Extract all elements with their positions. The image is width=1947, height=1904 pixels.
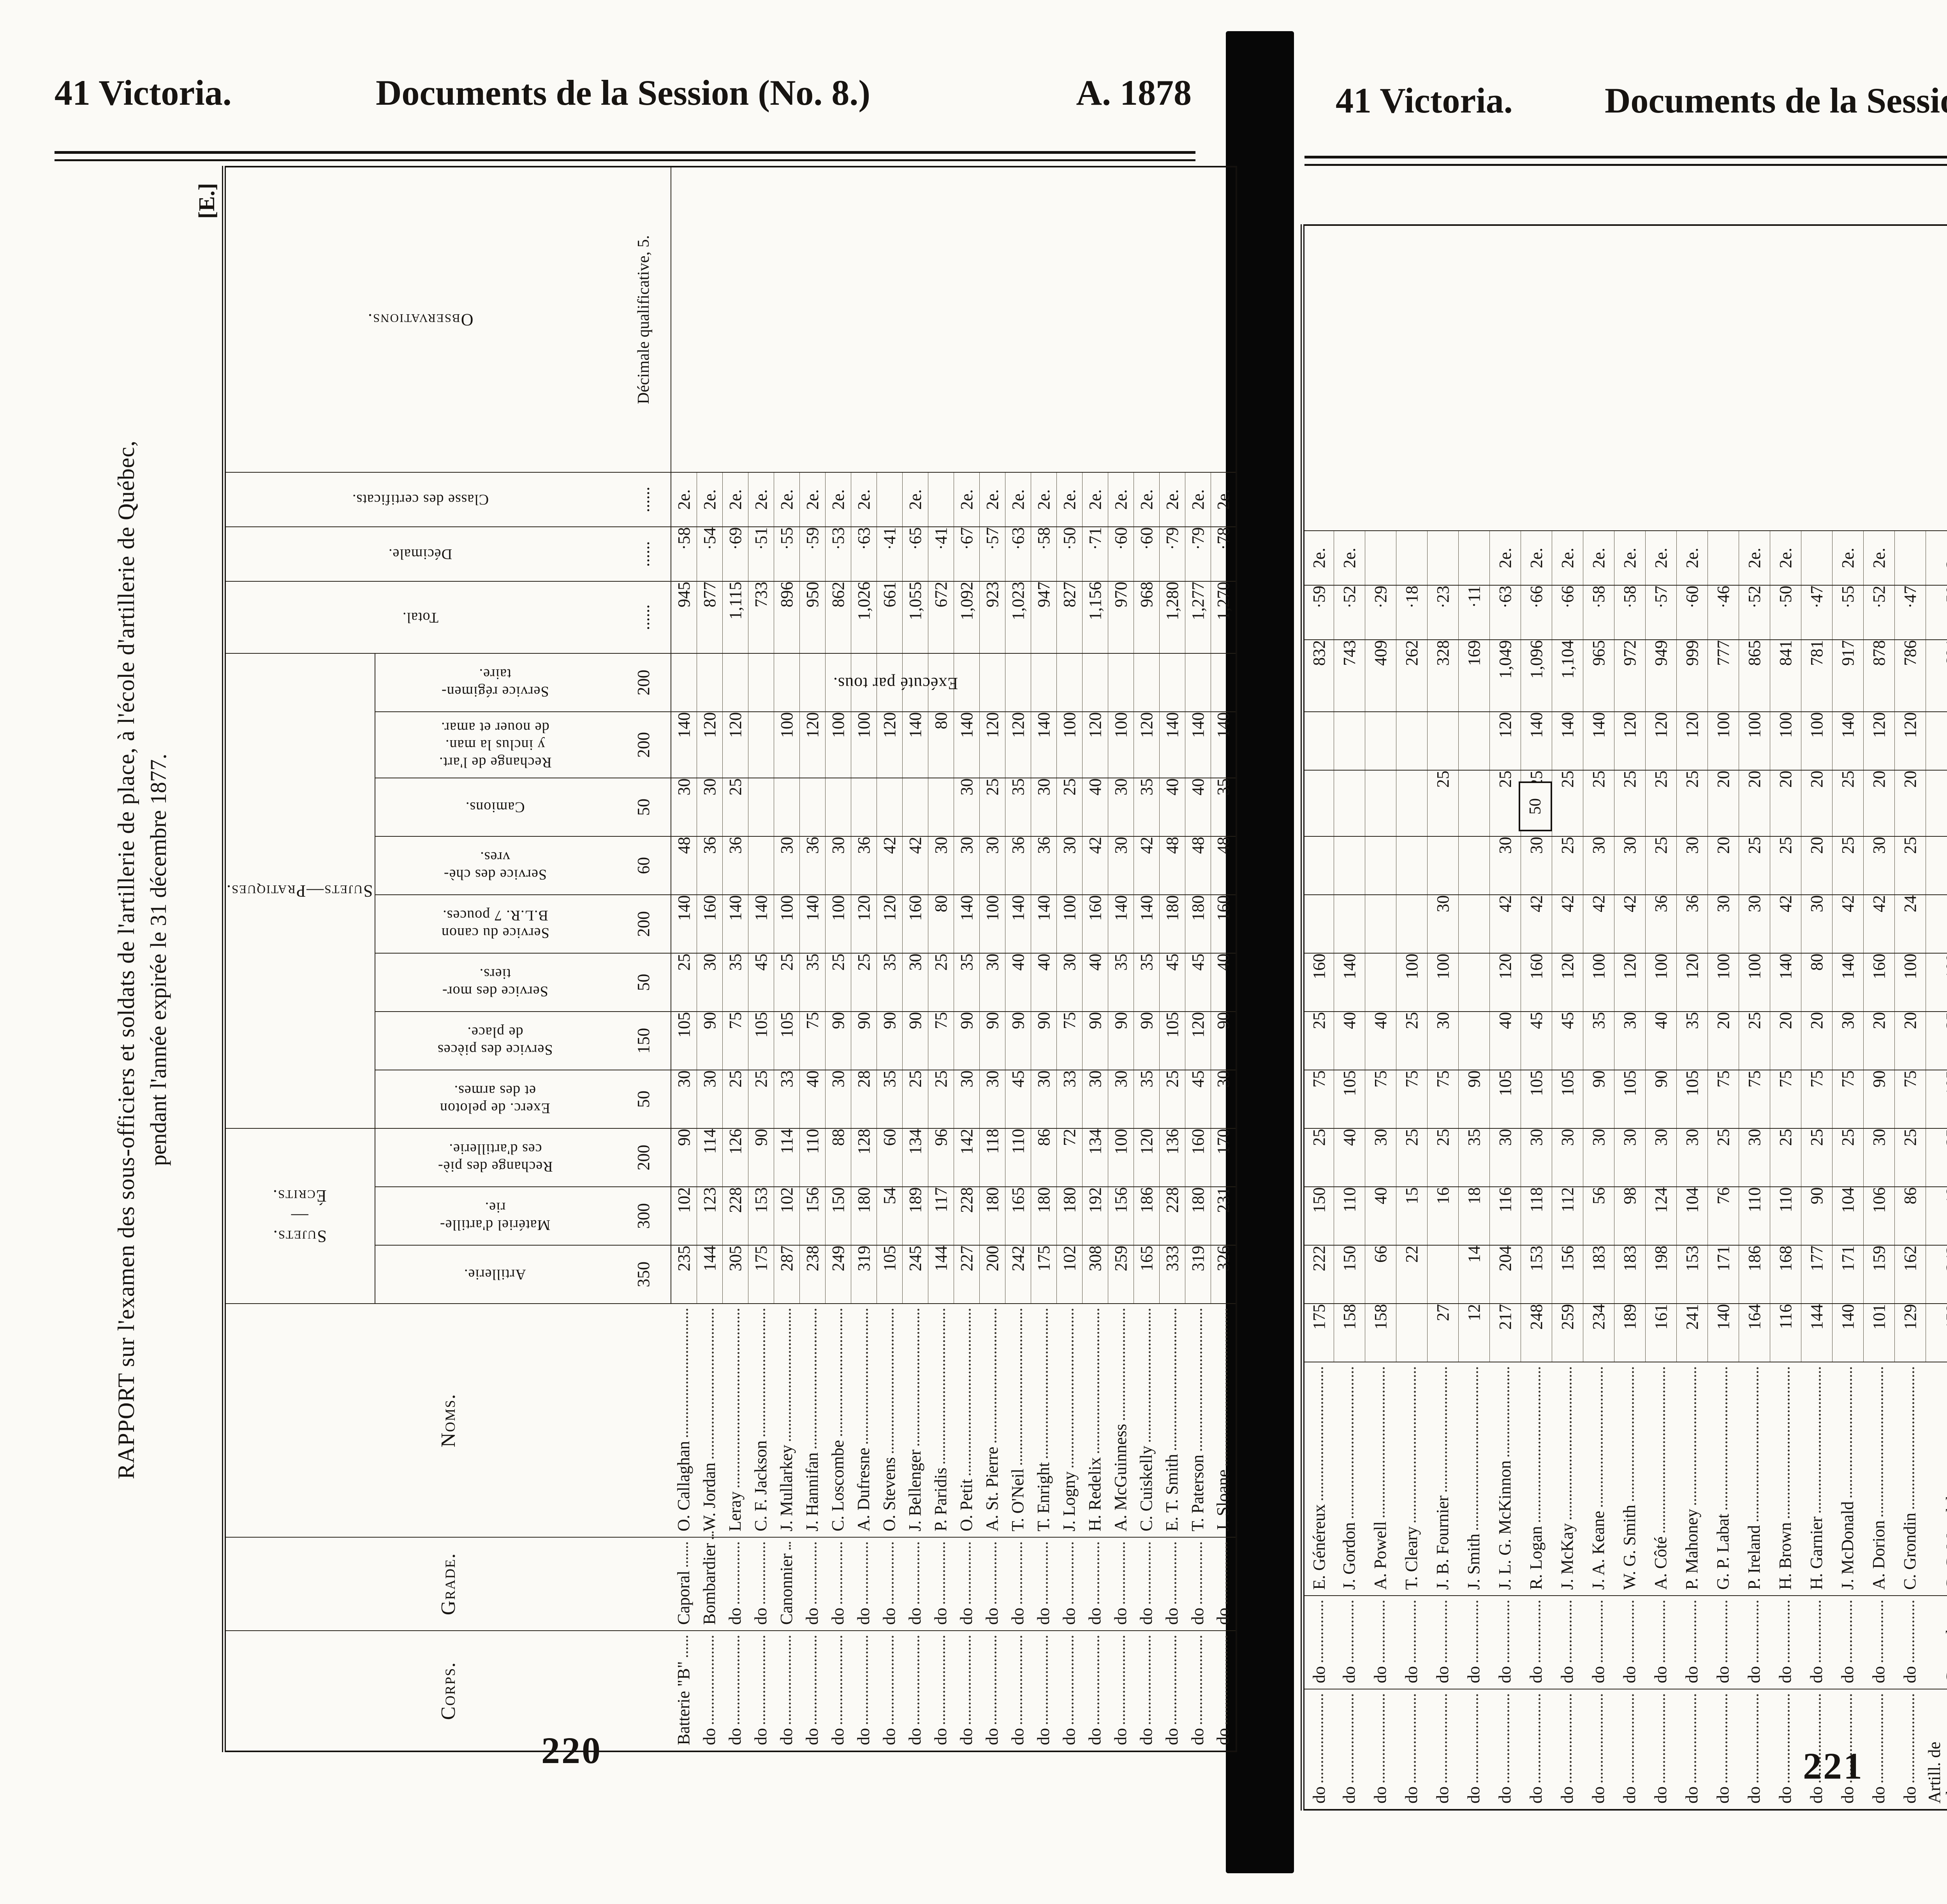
score-blr: 100 xyxy=(825,895,851,953)
score-total: 169 xyxy=(1458,640,1489,712)
score-total: 1,280 xyxy=(1159,581,1185,653)
score-materiel: 243 xyxy=(1926,1245,1947,1304)
grade-cell: do xyxy=(1108,1537,1134,1631)
score-artillerie: 140 xyxy=(1832,1304,1863,1362)
score-camions: 30 xyxy=(1521,836,1552,895)
score-total: 684 xyxy=(1926,640,1947,712)
score-chevres: 42 xyxy=(1614,895,1645,953)
score-place: 105 xyxy=(748,1012,774,1070)
soldier-row: do do J. Gordon 158 150 110 40 105 40 14… xyxy=(1334,225,1365,1810)
score-place: 90 xyxy=(1031,1012,1056,1070)
max-rechange-art: 200 xyxy=(616,712,671,778)
soldier-row: do do T. Paterson 319 180 160 45 120 45 … xyxy=(1185,167,1211,1751)
grade-cell: do xyxy=(1427,1596,1458,1689)
score-blr: 100 xyxy=(1926,953,1947,1012)
observations-cell xyxy=(1159,167,1185,472)
score-service-reg xyxy=(1185,653,1211,712)
score-artillerie: 165 xyxy=(1134,1245,1159,1304)
section-mark: [E.] xyxy=(194,183,220,219)
score-chevres xyxy=(1926,895,1947,953)
observations-cell xyxy=(1832,225,1863,531)
soldier-row: do do J. Logny 102 180 72 33 75 30 100 3… xyxy=(1056,167,1082,1751)
score-artillerie: 242 xyxy=(1005,1245,1031,1304)
score-mortiers: 40 xyxy=(1005,953,1031,1012)
score-chevres: 48 xyxy=(671,836,697,895)
score-peloton: 30 xyxy=(1489,1128,1521,1187)
observations-cell xyxy=(1583,225,1614,531)
max-blr: 200 xyxy=(616,895,671,953)
score-chevres: 36 xyxy=(1645,895,1676,953)
score-rechange-art: 20 xyxy=(1770,770,1801,836)
corps-cell: do xyxy=(748,1631,774,1751)
score-total: 877 xyxy=(697,581,722,653)
score-mortiers: 40 xyxy=(1645,1012,1676,1070)
score-peloton: 30 xyxy=(954,1070,979,1128)
score-peloton: 33 xyxy=(774,1070,799,1128)
score-mortiers: 20 xyxy=(1801,1012,1832,1070)
certificate-class: 2e. xyxy=(1005,472,1031,527)
observations-cell xyxy=(1134,167,1159,472)
name-cell: J. Logny xyxy=(1056,1304,1082,1537)
name-cell: O. Stevens xyxy=(877,1304,902,1537)
table-body-left: Batterie "B" Caporal O. Callaghan 235 10… xyxy=(671,167,1236,1751)
observations-cell xyxy=(1334,225,1365,531)
score-rechange-art: 120 xyxy=(1005,712,1031,778)
certificate-class xyxy=(1427,531,1458,585)
score-camions xyxy=(1303,836,1334,895)
score-decimale: ·54 xyxy=(697,527,722,581)
score-artillerie: 319 xyxy=(1185,1245,1211,1304)
score-rechange-art: 140 xyxy=(902,712,928,778)
score-materiel: 150 xyxy=(825,1187,851,1245)
name-cell: T. Cleary xyxy=(1396,1362,1427,1596)
score-rechange-art: 100 xyxy=(1056,712,1082,778)
score-camions xyxy=(799,778,825,836)
score-blr: 180 xyxy=(1159,895,1185,953)
certificate-class: 2e. xyxy=(1583,531,1614,585)
score-blr: 160 xyxy=(1303,953,1334,1012)
score-blr: 140 xyxy=(671,895,697,953)
score-materiel: 222 xyxy=(1303,1245,1334,1304)
score-chevres xyxy=(1458,895,1489,953)
score-mortiers: 20 xyxy=(1863,1012,1894,1070)
score-rechange-pieces: 90 xyxy=(748,1128,774,1187)
name-cell: A. Powell xyxy=(1365,1362,1396,1596)
header-group-ecrits: Sujets. — Écrits. xyxy=(224,1128,375,1304)
score-place: 75 xyxy=(1365,1070,1396,1128)
score-decimale: ·71 xyxy=(1082,527,1108,581)
name-cell: J. L. G. McKinnon xyxy=(1489,1362,1521,1596)
score-decimale: ·52 xyxy=(1863,585,1894,640)
score-blr: 160 xyxy=(902,895,928,953)
score-place: 105 xyxy=(671,1012,697,1070)
score-service-reg xyxy=(1031,653,1056,712)
certificate-class: 2e. xyxy=(1863,531,1894,585)
name-cell: T. Enright xyxy=(1031,1304,1056,1537)
corps-cell: do xyxy=(1334,1689,1365,1810)
certificate-class: 2e. xyxy=(1134,472,1159,527)
score-peloton: 30 xyxy=(1211,1070,1236,1128)
grade-cell: do xyxy=(1863,1596,1894,1689)
score-decimale: ·23 xyxy=(1427,585,1458,640)
soldier-row: do do O. Petit 227 228 142 30 90 35 140 … xyxy=(954,167,979,1751)
observations-cell xyxy=(1458,225,1489,531)
score-place: 90 xyxy=(851,1012,877,1070)
score-place: 105 xyxy=(1926,1070,1947,1128)
grade-cell: do xyxy=(799,1537,825,1631)
score-rechange-art: 100 xyxy=(825,712,851,778)
score-total: 1,026 xyxy=(851,581,877,653)
score-camions xyxy=(1458,836,1489,895)
observations-cell xyxy=(1082,167,1108,472)
score-rechange-art: 25 xyxy=(1645,770,1676,836)
score-mortiers: 45 xyxy=(1521,1012,1552,1070)
certificate-class: 2e. xyxy=(851,472,877,527)
score-rechange-pieces: 15 xyxy=(1396,1187,1427,1245)
score-materiel: 117 xyxy=(928,1187,954,1245)
score-rechange-art: 25 xyxy=(1427,770,1458,836)
score-peloton: 35 xyxy=(1458,1128,1489,1187)
score-place: 75 xyxy=(1894,1070,1926,1128)
score-chevres: 48 xyxy=(1159,836,1185,895)
score-rechange-pieces: 118 xyxy=(979,1128,1005,1187)
score-place: 75 xyxy=(1832,1070,1863,1128)
score-place: 75 xyxy=(1708,1070,1739,1128)
score-total: 733 xyxy=(748,581,774,653)
name-cell: T. Paterson xyxy=(1185,1304,1211,1537)
score-blr: 100 xyxy=(1583,953,1614,1012)
score-total: 1,049 xyxy=(1489,640,1521,712)
header-observations: Observations. xyxy=(224,167,616,472)
score-artillerie: 129 xyxy=(1894,1304,1926,1362)
page-number-right: 221 xyxy=(1803,1744,1864,1788)
grade-cell: do xyxy=(722,1537,748,1631)
score-peloton: 25 xyxy=(1894,1128,1926,1187)
score-chevres: 30 xyxy=(825,836,851,895)
score-place: 75 xyxy=(1427,1070,1458,1128)
score-mortiers: 40 xyxy=(1031,953,1056,1012)
score-rechange-art: 140 xyxy=(1185,712,1211,778)
name-cell: J. McKay xyxy=(1552,1362,1583,1596)
max-place: 150 xyxy=(616,1012,671,1070)
score-decimale: ·60 xyxy=(1108,527,1134,581)
score-rechange-art: 140 xyxy=(1211,712,1236,778)
score-chevres: 42 xyxy=(1863,895,1894,953)
header-corps: Corps. xyxy=(224,1631,671,1751)
score-decimale: ·53 xyxy=(825,527,851,581)
score-artillerie: 161 xyxy=(1645,1304,1676,1362)
score-rechange-art: 120 xyxy=(1082,712,1108,778)
name-cell: A. Côté xyxy=(1645,1362,1676,1596)
name-cell: J. B. Fournier xyxy=(1427,1362,1458,1596)
score-place: 90 xyxy=(1134,1012,1159,1070)
soldier-row: do do A. Côté 161 198 124 30 90 40 100 3… xyxy=(1645,225,1676,1810)
max-artillerie: 350 xyxy=(616,1245,671,1304)
score-rechange-pieces: 112 xyxy=(1552,1187,1583,1245)
score-artillerie: 241 xyxy=(1676,1304,1708,1362)
grade-cell: do xyxy=(902,1537,928,1631)
corps-cell: do xyxy=(1894,1689,1926,1810)
score-rechange-pieces: 120 xyxy=(1134,1128,1159,1187)
observations-cell xyxy=(1211,167,1236,472)
name-cell: P. Mahoney xyxy=(1676,1362,1708,1596)
certificate-class: 2e. xyxy=(902,472,928,527)
name-cell: J. Hannifan xyxy=(799,1304,825,1537)
score-rechange-art: 25 xyxy=(1552,770,1583,836)
name-cell: J. Bellenger xyxy=(902,1304,928,1537)
score-rechange-pieces: 170 xyxy=(1211,1128,1236,1187)
score-blr: 100 xyxy=(1427,953,1458,1012)
certificate-class: 2e. xyxy=(671,472,697,527)
name-cell: E. Généreux xyxy=(1303,1362,1334,1596)
score-chevres: 36 xyxy=(1031,836,1056,895)
score-mortiers: 30 xyxy=(979,953,1005,1012)
score-rechange-pieces: 118 xyxy=(1521,1187,1552,1245)
score-decimale: ·50 xyxy=(1770,585,1801,640)
score-decimale: ·63 xyxy=(1489,585,1521,640)
score-rechange-art: 80 xyxy=(928,712,954,778)
soldier-row: do Canonnier J. Mullarkey 287 102 114 33… xyxy=(774,167,799,1751)
certificate-class: 2e. xyxy=(1645,531,1676,585)
certificate-class: 2e. xyxy=(1676,531,1708,585)
soldier-row: do do J. A. Keane 234 183 56 30 90 35 10… xyxy=(1583,225,1614,1810)
score-artillerie: 227 xyxy=(954,1245,979,1304)
score-blr: 100 xyxy=(1894,953,1926,1012)
score-mortiers: 35 xyxy=(1676,1012,1708,1070)
soldier-row: do do T. Enright 175 180 86 30 90 40 140… xyxy=(1031,167,1056,1751)
score-blr: 100 xyxy=(979,895,1005,953)
grade-cell: do xyxy=(1894,1596,1926,1689)
score-rechange-pieces: 106 xyxy=(1863,1187,1894,1245)
corps-cell: do xyxy=(1458,1689,1489,1810)
max-camions: 50 xyxy=(616,778,671,836)
score-decimale: ·50 xyxy=(1056,527,1082,581)
score-decimale: ·60 xyxy=(1134,527,1159,581)
score-total: 786 xyxy=(1894,640,1926,712)
certificate-class xyxy=(1396,531,1427,585)
observations-cell xyxy=(851,167,877,472)
name-cell: T. O'Neil xyxy=(1005,1304,1031,1537)
grade-cell: do xyxy=(1005,1537,1031,1631)
score-decimale: ·29 xyxy=(1365,585,1396,640)
name-cell: P. Ireland xyxy=(1739,1362,1770,1596)
grade-cell: do xyxy=(1832,1596,1863,1689)
exam-table-left: Corps. Grade. Noms. Sujets. — Écrits. Su… xyxy=(222,166,1237,1752)
score-camions xyxy=(902,778,928,836)
certificate-class: 2e. xyxy=(954,472,979,527)
score-total: 743 xyxy=(1334,640,1365,712)
score-blr: 140 xyxy=(1334,953,1365,1012)
score-peloton: 25 xyxy=(1303,1128,1334,1187)
score-mortiers: 45 xyxy=(1185,953,1211,1012)
score-mortiers: 30 xyxy=(902,953,928,1012)
score-artillerie: 217 xyxy=(1489,1304,1521,1362)
score-service-reg xyxy=(1334,712,1365,770)
score-peloton: 30 xyxy=(671,1070,697,1128)
score-rechange-pieces: 104 xyxy=(1832,1187,1863,1245)
score-rechange-art: 20 xyxy=(1801,770,1832,836)
observations-cell xyxy=(1926,225,1947,531)
score-peloton: 30 xyxy=(825,1070,851,1128)
header-noms: Noms. xyxy=(224,1304,671,1537)
score-service-reg xyxy=(722,653,748,712)
score-peloton: 30 xyxy=(1365,1128,1396,1187)
soldier-row: do do J. McKay 259 156 112 30 105 45 120… xyxy=(1552,225,1583,1810)
score-blr: 100 xyxy=(1645,953,1676,1012)
score-mortiers: 25 xyxy=(671,953,697,1012)
score-camions: 30 xyxy=(1676,836,1708,895)
score-camions: 35 xyxy=(1005,778,1031,836)
corps-cell: do xyxy=(954,1631,979,1751)
soldier-row: do Bombardier W. Jordan 144 123 114 30 9… xyxy=(697,167,722,1751)
score-peloton: 28 xyxy=(851,1070,877,1128)
score-rechange-art: 20 xyxy=(1894,770,1926,836)
soldier-row: do do H. Brown 116 168 110 25 75 20 140 … xyxy=(1770,225,1801,1810)
name-cell: W. Jordan xyxy=(697,1304,722,1537)
soldier-row: do do P. Mahoney 241 153 104 30 105 35 1… xyxy=(1676,225,1708,1810)
score-materiel: 228 xyxy=(722,1187,748,1245)
score-mortiers: 40 xyxy=(1211,953,1236,1012)
score-rechange-art: 25 xyxy=(1676,770,1708,836)
observations-cell xyxy=(902,167,928,472)
score-service-reg xyxy=(1427,712,1458,770)
score-rechange-art: 120 xyxy=(979,712,1005,778)
name-cell: A. St. Pierre xyxy=(979,1304,1005,1537)
score-rechange-pieces: 110 xyxy=(799,1128,825,1187)
observations-cell xyxy=(799,167,825,472)
certificate-class: 2e. xyxy=(1211,472,1236,527)
grade-cell: do xyxy=(1614,1596,1645,1689)
score-service-reg xyxy=(1303,712,1334,770)
observations-cell xyxy=(1396,225,1427,531)
score-service-reg xyxy=(1056,653,1082,712)
score-camions: 30 xyxy=(697,778,722,836)
score-rechange-pieces: 116 xyxy=(1489,1187,1521,1245)
score-peloton: 25 xyxy=(1427,1128,1458,1187)
score-materiel: 156 xyxy=(1552,1245,1583,1304)
grade-cell: do xyxy=(1676,1596,1708,1689)
score-blr: 140 xyxy=(1005,895,1031,953)
score-chevres: 36 xyxy=(722,836,748,895)
score-chevres: 36 xyxy=(1005,836,1031,895)
certificate-class: 2e. xyxy=(1739,531,1770,585)
score-rechange-art xyxy=(1396,770,1427,836)
score-artillerie: 144 xyxy=(697,1245,722,1304)
executed-by-all-note: Exécuté par tous. xyxy=(771,650,1020,716)
score-rechange-pieces: 60 xyxy=(877,1128,902,1187)
scanned-document: { "left_page": { "header_left": "41 Vict… xyxy=(0,0,1947,1873)
score-materiel: 186 xyxy=(1134,1187,1159,1245)
score-blr: 100 xyxy=(1708,953,1739,1012)
score-place: 75 xyxy=(1303,1070,1334,1128)
score-chevres: 42 xyxy=(1134,836,1159,895)
score-decimale: ·50 xyxy=(1926,585,1947,640)
observations-cell xyxy=(748,167,774,472)
soldier-row: do do C. Loscombe 249 150 88 30 90 25 10… xyxy=(825,167,851,1751)
score-rechange-pieces: 86 xyxy=(1031,1128,1056,1187)
corps-cell: do xyxy=(1489,1689,1521,1810)
score-artillerie: 245 xyxy=(902,1245,928,1304)
score-camions xyxy=(774,778,799,836)
score-mortiers: 35 xyxy=(1926,1012,1947,1070)
score-peloton: 30 xyxy=(1739,1128,1770,1187)
score-rechange-pieces: 16 xyxy=(1427,1187,1458,1245)
soldier-row: do do A. McGuinness 259 156 100 30 90 35… xyxy=(1108,167,1134,1751)
score-decimale: ·57 xyxy=(979,527,1005,581)
score-blr: 100 xyxy=(1056,895,1082,953)
score-blr: 140 xyxy=(722,895,748,953)
score-peloton: 25 xyxy=(748,1070,774,1128)
score-artillerie: 319 xyxy=(851,1245,877,1304)
header-pieces-de-place: Service des pièces de place. xyxy=(375,1012,616,1070)
score-camions: 25 xyxy=(979,778,1005,836)
score-rechange-pieces: 100 xyxy=(1108,1128,1134,1187)
score-mortiers: 30 xyxy=(697,953,722,1012)
observations-cell xyxy=(1770,225,1801,531)
score-decimale: ·41 xyxy=(928,527,954,581)
score-mortiers: 20 xyxy=(1770,1012,1801,1070)
score-rechange-pieces: 110 xyxy=(1770,1187,1801,1245)
grade-cell: do xyxy=(1334,1596,1365,1689)
score-materiel: 186 xyxy=(1739,1245,1770,1304)
score-service-reg xyxy=(671,653,697,712)
name-cell: G. C. Mondelet xyxy=(1926,1362,1947,1596)
corps-cell: do xyxy=(1134,1631,1159,1751)
score-decimale: ·46 xyxy=(1708,585,1739,640)
score-place: 105 xyxy=(1614,1070,1645,1128)
soldier-row: do do H. Redelix 308 192 134 30 90 40 16… xyxy=(1082,167,1108,1751)
corps-cell: do xyxy=(1521,1689,1552,1810)
score-peloton: 25 xyxy=(1708,1128,1739,1187)
score-materiel: 153 xyxy=(1676,1245,1708,1304)
score-decimale: ·51 xyxy=(748,527,774,581)
score-chevres: 42 xyxy=(1832,895,1863,953)
score-peloton: 30 xyxy=(1082,1070,1108,1128)
score-chevres: 36 xyxy=(1676,895,1708,953)
name-cell: J. A. Keane xyxy=(1583,1362,1614,1596)
score-decimale: ·58 xyxy=(1583,585,1614,640)
grade-cell: do xyxy=(1056,1537,1082,1631)
soldier-row: do do J. L. G. McKinnon 217 204 116 30 1… xyxy=(1489,225,1521,1810)
table-header: Corps. Grade. Noms. Sujets. — Écrits. Su… xyxy=(224,167,671,1751)
score-place: 90 xyxy=(1458,1070,1489,1128)
score-mortiers xyxy=(1458,1012,1489,1070)
score-total: 970 xyxy=(1108,581,1134,653)
score-artillerie: 259 xyxy=(1552,1304,1583,1362)
score-camions: 25 xyxy=(722,778,748,836)
score-service-reg xyxy=(697,653,722,712)
name-cell: C. F. Jackson xyxy=(748,1304,774,1537)
grade-cell: do xyxy=(1365,1596,1396,1689)
score-rechange-art: 25 xyxy=(1832,770,1863,836)
score-artillerie: 140 xyxy=(1708,1304,1739,1362)
score-service-reg: 120 xyxy=(1894,712,1926,770)
score-place: 105 xyxy=(774,1012,799,1070)
score-total: 827 xyxy=(1056,581,1082,653)
certificate-class: 2e. xyxy=(1108,472,1134,527)
score-total: 1,023 xyxy=(1005,581,1031,653)
certificate-class: 2e. xyxy=(799,472,825,527)
corps-cell: do xyxy=(1005,1631,1031,1751)
score-materiel: 150 xyxy=(1334,1245,1365,1304)
corps-cell: do xyxy=(1082,1631,1108,1751)
score-peloton: 25 xyxy=(928,1070,954,1128)
header-materiel: Matériel d'artille- rie. xyxy=(375,1187,616,1245)
score-camions: 40 xyxy=(1159,778,1185,836)
score-artillerie xyxy=(1396,1304,1427,1362)
observations-cell xyxy=(1489,225,1521,531)
grade-cell: do xyxy=(748,1537,774,1631)
